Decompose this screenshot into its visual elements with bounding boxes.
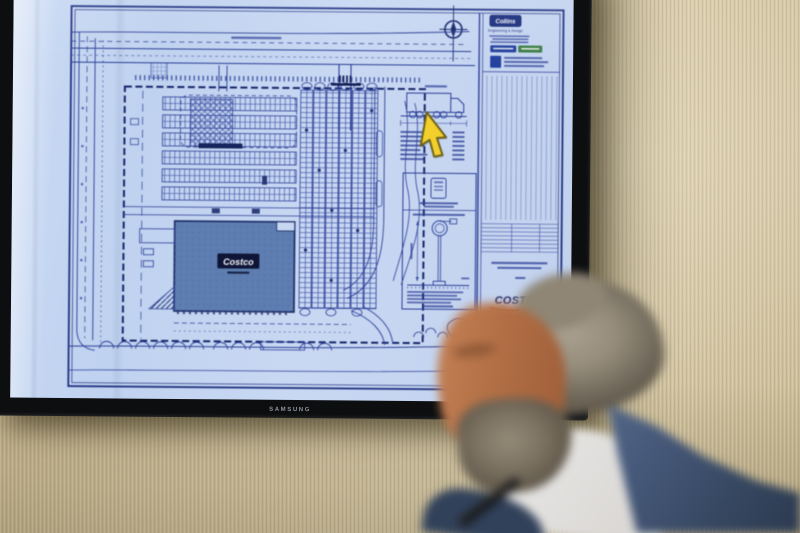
presenter [0,0,800,533]
meeting-room-photo: Costco [0,0,800,533]
